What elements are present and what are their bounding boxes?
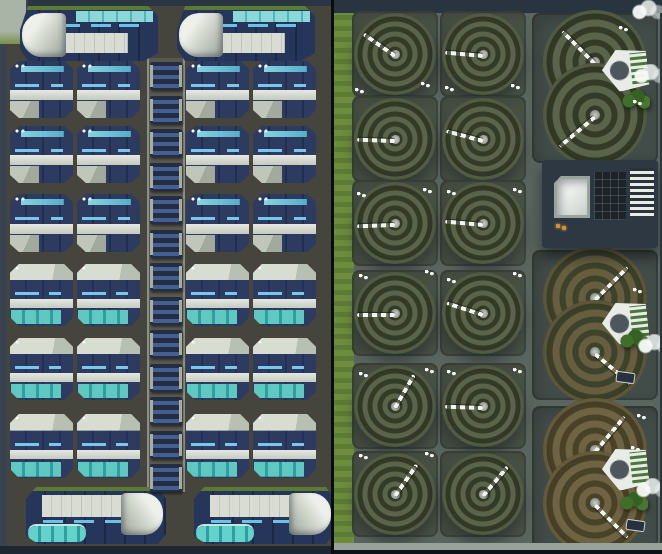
field-marker: [358, 272, 369, 281]
field-marker: [446, 276, 457, 285]
field-marker: [632, 286, 643, 295]
top-road-edge: [0, 0, 331, 6]
residence-building[interactable]: [77, 126, 140, 183]
field-marker: [420, 80, 431, 89]
residence-building[interactable]: [10, 414, 73, 478]
bush-cluster: [620, 330, 648, 350]
residence-building[interactable]: [10, 61, 73, 118]
crop-field-circle: [354, 98, 436, 180]
crop-field-circle: [442, 453, 524, 535]
infrastructure-module[interactable]: [150, 230, 182, 258]
irrigation-arm: [393, 464, 418, 497]
infrastructure-module[interactable]: [150, 62, 182, 90]
infrastructure-module[interactable]: [150, 163, 182, 191]
crop-field-plot[interactable]: [440, 451, 526, 537]
field-marker: [356, 190, 367, 199]
irrigation-arm: [446, 129, 484, 143]
factory-slatted-wing: [630, 168, 654, 216]
grass-strip: [334, 0, 354, 554]
residence-building[interactable]: [253, 126, 316, 183]
field-marker: [618, 24, 629, 33]
residence-building[interactable]: [186, 61, 249, 118]
residence-building[interactable]: [77, 338, 140, 400]
irrigation-arm: [594, 266, 629, 301]
irrigation-arm: [445, 51, 483, 58]
residence-building[interactable]: [253, 338, 316, 400]
production-building-large[interactable]: [20, 6, 158, 61]
bottom-road: [334, 543, 662, 550]
bottom-road-edge: [0, 546, 331, 554]
left-road-edge: [0, 44, 7, 554]
infrastructure-module[interactable]: [150, 464, 182, 492]
production-building-large[interactable]: [194, 487, 331, 544]
large-crop-field-plot[interactable]: [532, 13, 658, 163]
residence-building[interactable]: [77, 61, 140, 118]
infrastructure-module[interactable]: [150, 96, 182, 124]
residence-building[interactable]: [10, 338, 73, 400]
field-marker: [358, 370, 369, 379]
field-marker: [354, 86, 365, 95]
field-marker: [630, 444, 641, 453]
residence-building[interactable]: [186, 194, 249, 252]
crop-field-circle: [354, 453, 436, 535]
infrastructure-module[interactable]: [150, 397, 182, 425]
crop-field-circle: [442, 98, 524, 180]
infrastructure-module[interactable]: [150, 330, 182, 358]
crop-field-plot[interactable]: [440, 96, 526, 182]
irrigation-arm: [481, 466, 508, 498]
field-marker: [636, 412, 647, 421]
infrastructure-module[interactable]: [150, 431, 182, 459]
farm-factory-building[interactable]: [542, 160, 658, 248]
panel-agriculture-district: [334, 0, 662, 554]
infrastructure-module[interactable]: [150, 263, 182, 291]
residence-building[interactable]: [10, 264, 73, 326]
irrigation-arm: [357, 313, 395, 317]
residence-building[interactable]: [253, 61, 316, 118]
field-marker: [424, 450, 435, 459]
residence-building[interactable]: [77, 414, 140, 478]
bottom-edge: [334, 550, 662, 554]
field-marker: [424, 268, 435, 277]
residence-building[interactable]: [253, 264, 316, 326]
infrastructure-module[interactable]: [150, 297, 182, 325]
large-crop-field-plot[interactable]: [532, 250, 658, 400]
field-marker: [424, 366, 435, 375]
irrigation-arm: [363, 33, 396, 58]
field-marker: [512, 186, 523, 195]
infrastructure-module[interactable]: [150, 364, 182, 392]
bush-cluster: [620, 492, 648, 512]
infrastructure-module[interactable]: [150, 196, 182, 224]
residence-building[interactable]: [186, 126, 249, 183]
factory-core-roof: [594, 172, 626, 220]
production-building-large[interactable]: [26, 487, 166, 544]
infrastructure-module[interactable]: [150, 129, 182, 157]
field-marker: [444, 84, 455, 93]
residence-building[interactable]: [253, 194, 316, 252]
residence-building[interactable]: [77, 264, 140, 326]
irrigation-arm: [357, 223, 395, 228]
irrigation-arm: [357, 138, 395, 143]
crop-field-circle: [354, 272, 436, 354]
field-marker: [512, 366, 523, 375]
residence-building[interactable]: [77, 194, 140, 252]
panel-residential-district: [0, 0, 331, 554]
irrigation-arm: [558, 115, 596, 148]
irrigation-arm: [393, 374, 415, 409]
residence-building[interactable]: [186, 338, 249, 400]
irrigation-arm: [561, 30, 596, 65]
residence-building[interactable]: [10, 194, 73, 252]
field-marker: [446, 188, 457, 197]
field-marker: [510, 82, 521, 91]
irrigation-arm: [446, 301, 483, 317]
factory-light: [562, 226, 566, 230]
field-marker: [422, 186, 433, 195]
game-viewport: [0, 0, 662, 554]
factory-light: [556, 224, 560, 228]
irrigation-arm: [445, 405, 483, 410]
crop-field-plot[interactable]: [352, 270, 438, 356]
crop-field-circle: [442, 365, 524, 447]
residence-building[interactable]: [186, 264, 249, 326]
field-marker: [512, 270, 523, 279]
residence-building[interactable]: [10, 126, 73, 183]
residence-building[interactable]: [253, 414, 316, 478]
crop-field-plot[interactable]: [352, 96, 438, 182]
residence-building[interactable]: [186, 414, 249, 478]
field-marker: [632, 98, 643, 107]
production-building-large[interactable]: [177, 6, 315, 61]
crop-field-plot[interactable]: [352, 451, 438, 537]
field-marker: [446, 368, 457, 377]
irrigation-arm: [445, 220, 483, 227]
factory-atrium: [554, 176, 590, 218]
irrigation-arm: [593, 415, 626, 453]
field-marker: [358, 452, 369, 461]
